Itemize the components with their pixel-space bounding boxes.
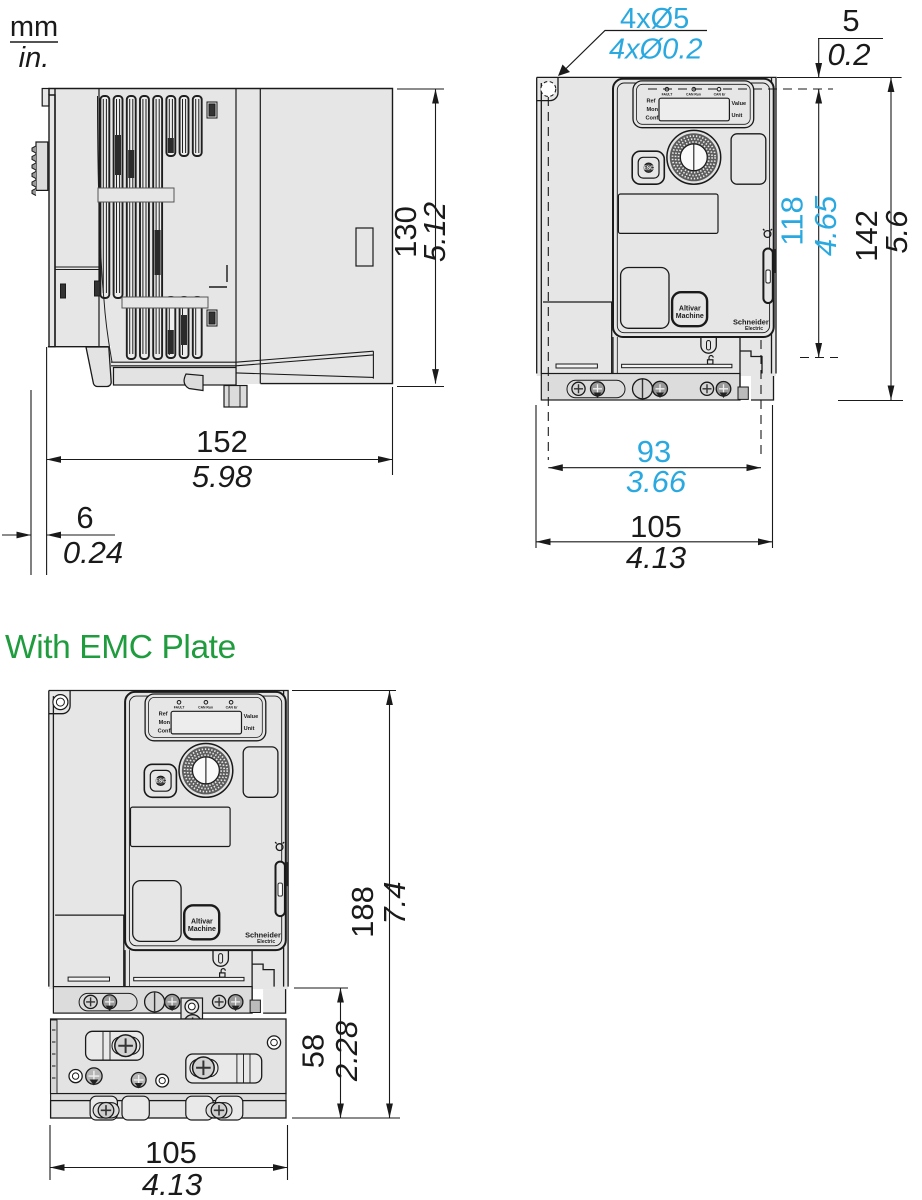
svg-text:188: 188	[345, 886, 380, 938]
svg-text:5.98: 5.98	[192, 459, 253, 494]
svg-text:2.28: 2.28	[329, 1020, 364, 1082]
svg-text:3.66: 3.66	[626, 464, 687, 499]
svg-text:mm: mm	[10, 11, 58, 43]
svg-text:105: 105	[145, 1135, 197, 1170]
svg-text:152: 152	[196, 424, 248, 459]
svg-text:5.6: 5.6	[879, 210, 914, 254]
svg-text:With EMC Plate: With EMC Plate	[5, 629, 236, 666]
svg-text:4.65: 4.65	[808, 195, 843, 256]
svg-text:5: 5	[842, 3, 859, 38]
svg-text:0.2: 0.2	[827, 37, 870, 72]
svg-text:105: 105	[630, 509, 682, 544]
svg-text:4xØ0.2: 4xØ0.2	[609, 34, 703, 66]
svg-text:118: 118	[775, 196, 810, 245]
svg-text:6: 6	[76, 500, 93, 535]
svg-text:0.24: 0.24	[63, 535, 123, 570]
svg-text:5.12: 5.12	[417, 202, 452, 262]
svg-text:58: 58	[296, 1034, 331, 1068]
svg-text:4.13: 4.13	[626, 540, 686, 575]
svg-text:7.4: 7.4	[377, 881, 412, 924]
svg-text:4xØ5: 4xØ5	[620, 3, 689, 35]
svg-text:in.: in.	[19, 42, 50, 74]
svg-text:4.13: 4.13	[142, 1167, 202, 1200]
